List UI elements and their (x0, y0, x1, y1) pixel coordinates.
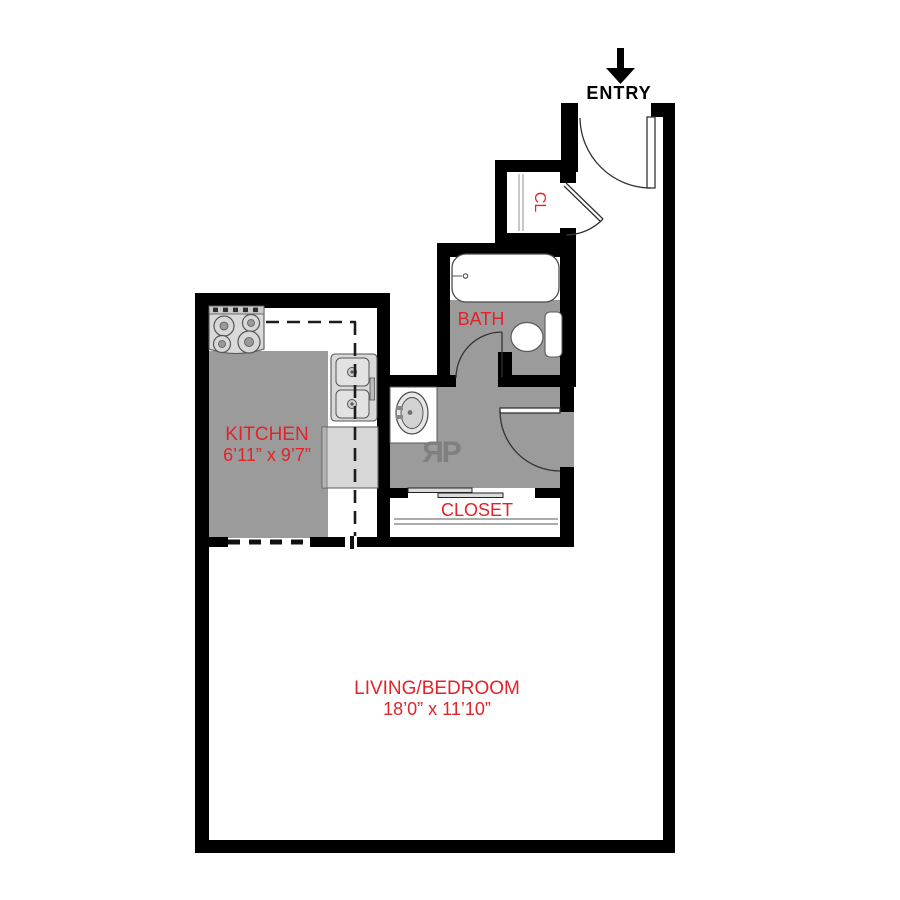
floor-plan-canvas: ENTRY CL BATH KITCHEN 6’11” x 9’7” CLOSE… (0, 0, 900, 900)
hall-top-wall-left (390, 375, 456, 387)
cl-door-top-jamb (560, 160, 576, 183)
bath-vanity (545, 312, 562, 357)
closet-label: CLOSET (441, 500, 513, 520)
kitchen-bottom-wall-mid (310, 537, 345, 547)
closet-sliding-door-left (408, 488, 472, 493)
refrigerator (322, 427, 378, 488)
living-dimensions: 18’0” x 11’10” (383, 699, 491, 719)
hall-fixtures (390, 387, 437, 443)
bathtub (452, 254, 559, 302)
closet-right-jamb (535, 488, 560, 498)
closet-sliding-door-right (438, 493, 503, 498)
burner-center-icon (220, 322, 228, 330)
stove-knob-icon (213, 308, 218, 313)
entry-door-leaf (647, 117, 655, 188)
refrigerator-door-edge (322, 427, 327, 488)
bath-left-wall (437, 243, 450, 387)
kitchen-bottom-wall-left (195, 537, 228, 547)
closet-left-jamb (390, 488, 408, 498)
wall-dash-mark (350, 536, 354, 549)
left-exterior-wall (195, 293, 209, 853)
bath-label: BATH (458, 309, 505, 329)
kitchen-dimensions: 6’11” x 9’7” (223, 445, 311, 465)
living-label: LIVING/BEDROOM (354, 678, 520, 699)
sink-faucet-icon (370, 378, 375, 400)
hall-right-wall-upper (560, 387, 574, 412)
burner-center-icon (248, 320, 255, 327)
kitchen-right-wall (377, 293, 390, 547)
stove-knob-icon (243, 308, 248, 313)
hall-doorway-floor (560, 412, 574, 467)
stove-knob-icon (253, 308, 258, 313)
burner-center-icon (245, 338, 254, 347)
burner-center-icon (219, 341, 226, 348)
hall-door-leaf (500, 408, 560, 413)
sink-drain-dot-icon (350, 402, 353, 405)
toilet (511, 323, 543, 352)
kitchen-label: KITCHEN (225, 424, 308, 445)
hall-right-wall-lower (560, 467, 574, 547)
entry-label: ENTRY (586, 83, 651, 103)
bath-door-stub-wall (498, 352, 512, 377)
stove-knob-icon (233, 308, 238, 313)
vanity-faucet-icon (396, 415, 403, 419)
floor-plan: ENTRY CL BATH KITCHEN 6’11” x 9’7” CLOSE… (0, 0, 900, 900)
cl-label: CL (531, 192, 548, 213)
vanity-faucet-icon (396, 406, 403, 410)
cl-door-bottom-jamb (560, 228, 576, 245)
bottom-exterior-wall (195, 840, 675, 853)
cl-left-wall (495, 160, 507, 245)
entry-arrow-stem-icon (617, 48, 624, 70)
right-exterior-wall (663, 103, 675, 853)
vanity-drain-icon (408, 410, 413, 415)
bath-right-wall (560, 243, 576, 387)
stove-knob-icon (223, 308, 228, 313)
watermark-logo: ЯP (422, 436, 461, 469)
closet-bottom-wall (357, 537, 570, 547)
bath-doorway-floor (456, 375, 498, 387)
sink-drain-dot-icon (350, 370, 353, 373)
